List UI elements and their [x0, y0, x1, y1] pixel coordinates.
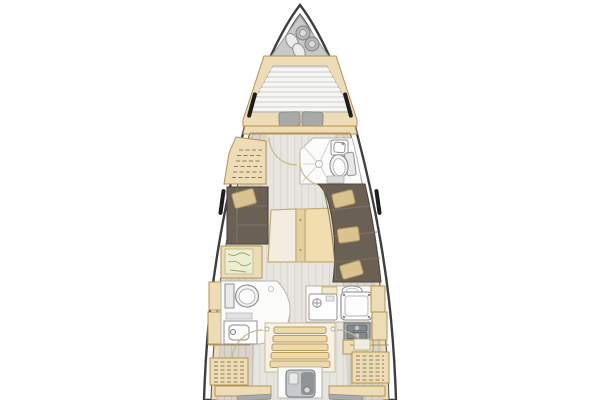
table-leaf-left [268, 209, 296, 262]
aft-cabinet-right [354, 339, 370, 350]
floorplan-canvas [0, 0, 600, 400]
aft-head-faucet-icon [230, 329, 235, 334]
v-berth-pillow [279, 112, 300, 127]
forward-head-mat [327, 176, 344, 183]
table-center-spine [296, 209, 305, 262]
companionway-steps [270, 327, 330, 368]
yacht-floorplan [0, 0, 600, 400]
galley-side-counter [372, 312, 387, 340]
salon-table [268, 208, 337, 262]
aft-head-toilet-bowl [239, 289, 255, 304]
stove-gimbal-icon [368, 316, 371, 319]
table-hinge-icon [299, 219, 301, 221]
sofa-pillow [337, 227, 360, 244]
galley-drainer [326, 296, 334, 301]
engine-panel [289, 373, 298, 384]
stove-gimbal-icon [368, 294, 371, 297]
windlass-drum-core-icon [300, 30, 307, 37]
aft-head-shelf [226, 313, 252, 319]
aft-head-side-cabinet [209, 282, 222, 310]
forward-head-faucet-icon [342, 142, 345, 145]
forward-head [300, 138, 362, 185]
table-hinge-icon [299, 249, 301, 251]
windlass-drum-core-icon [309, 41, 316, 48]
aft-head-toilet-tank [225, 284, 234, 308]
stove-gimbal-icon [343, 316, 346, 319]
v-berth-pillow [302, 112, 323, 127]
galley-side-counter [371, 286, 385, 312]
stove-gimbal-icon [343, 294, 346, 297]
shower-drain-icon [316, 161, 323, 168]
door-pivot-icon [265, 327, 269, 331]
v-berth-cabin [243, 56, 357, 134]
door-pivot-icon [331, 327, 335, 331]
oven-knob-icon [355, 326, 359, 330]
engine-pulley-icon [304, 387, 310, 393]
aft-head-side-cabinet [208, 312, 222, 344]
